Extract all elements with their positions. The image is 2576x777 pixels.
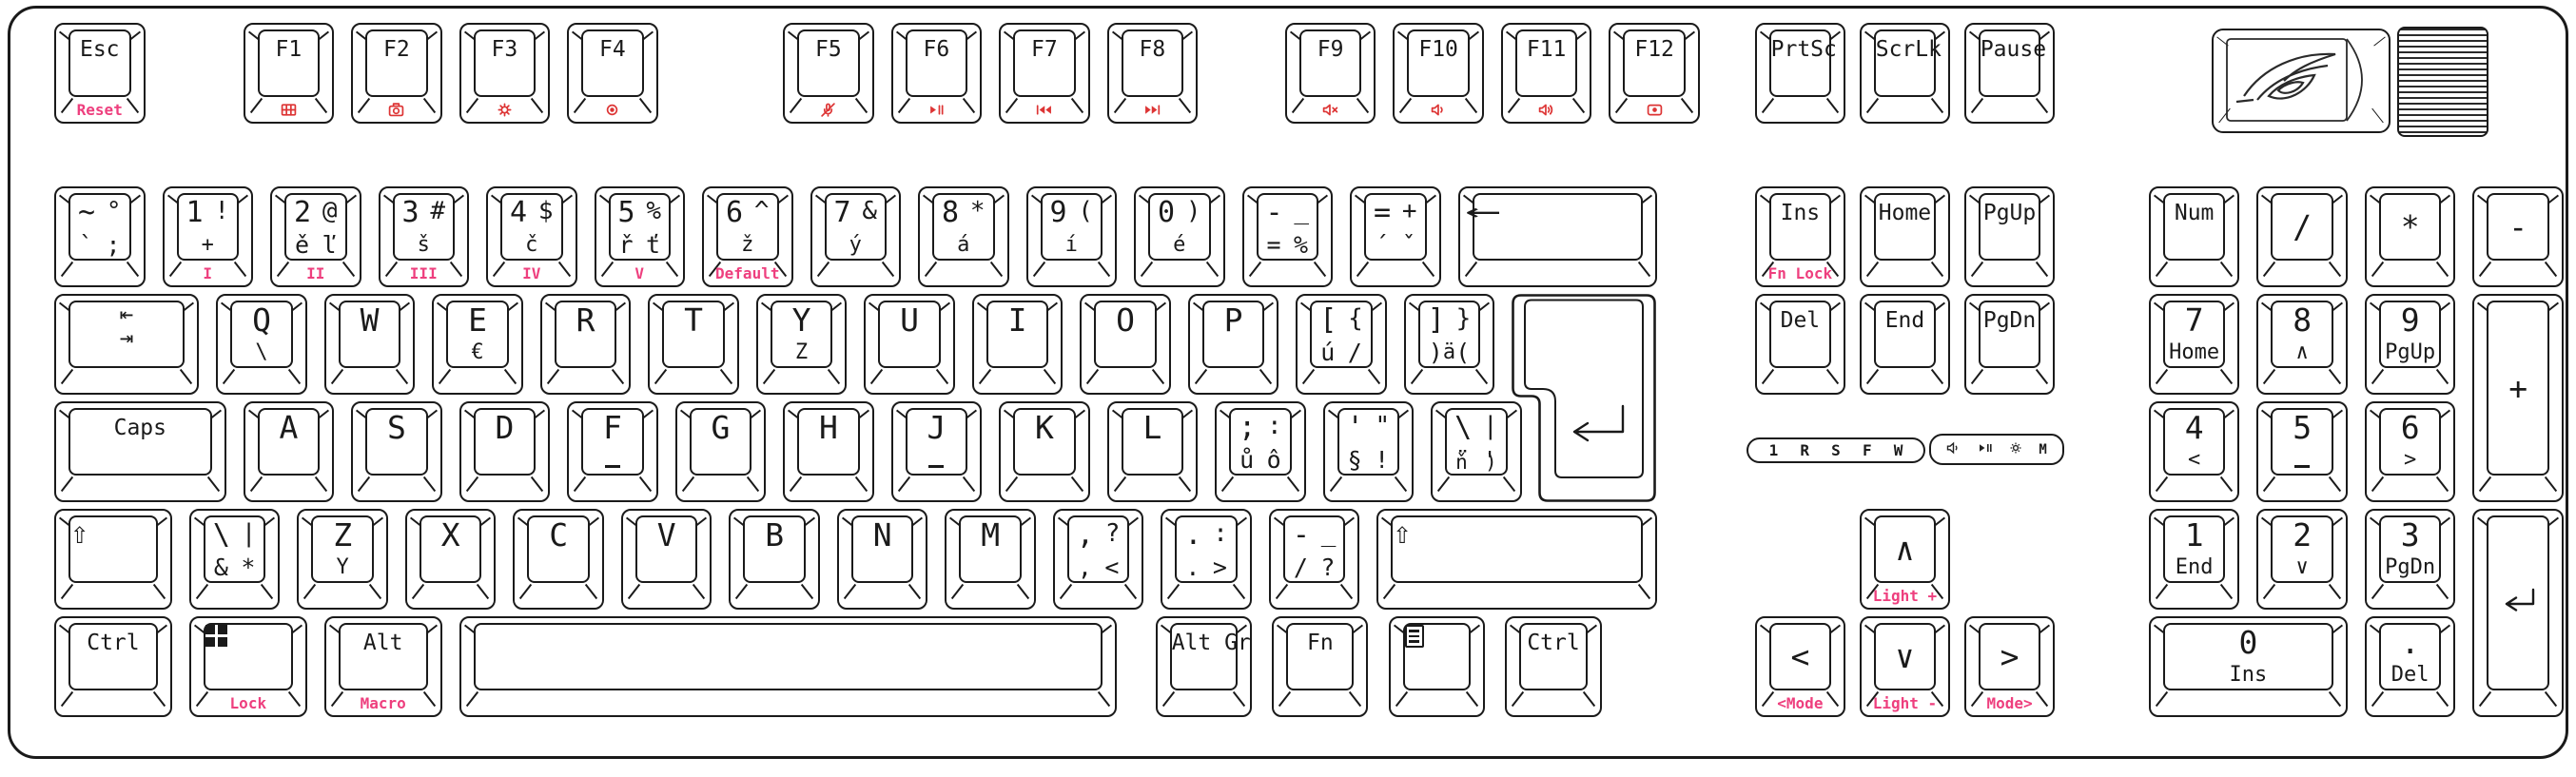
bevel (2371, 262, 2384, 277)
key-f8[interactable]: F8 (1107, 23, 1199, 124)
key-i[interactable]: I (972, 294, 1064, 395)
key-n[interactable]: N (837, 509, 928, 610)
bevel (126, 262, 138, 277)
keycap-top: ]})(ä (1418, 301, 1481, 368)
bevel (1017, 584, 1029, 599)
key-f11[interactable]: F11 (1501, 23, 1592, 124)
bevel (2545, 476, 2557, 492)
bevel (1637, 262, 1649, 277)
key-rshift[interactable]: ⇧ (1376, 509, 1656, 610)
bevel (1195, 369, 1207, 384)
key-prtsc[interactable]: PrtSc (1755, 23, 1846, 124)
bevel (816, 262, 829, 277)
indicator-letter: S (1831, 441, 1841, 459)
key-space[interactable] (459, 616, 1117, 717)
bevel (1113, 476, 1125, 492)
bevel (1286, 476, 1298, 492)
bevel (1464, 262, 1476, 277)
keycap-top: ⇤⇥ (68, 301, 185, 368)
front-legend (1287, 99, 1375, 121)
key-3[interactable]: 3#šIII (379, 186, 470, 287)
keycap-top: 1!+ (177, 193, 240, 261)
keycap-top: 4< (2163, 408, 2226, 476)
bevel (1971, 262, 1983, 277)
key-np-1[interactable]: 1End (2149, 509, 2240, 610)
bevel (585, 584, 597, 599)
bevel (1276, 584, 1288, 599)
bevel (1421, 262, 1434, 277)
key-f2[interactable]: F2 (351, 23, 442, 124)
bevel (2479, 691, 2491, 707)
key-rctrl[interactable]: Ctrl (1505, 616, 1601, 717)
key-semicolon[interactable]: ;:ůô (1215, 401, 1306, 502)
front-legend: III (381, 262, 468, 284)
bevel (1971, 369, 1983, 384)
keycap-top: Home (1874, 193, 1937, 261)
shift-icon: ⇧ (1393, 515, 1411, 551)
volume-wheel[interactable] (2397, 27, 2488, 137)
keycap-top: =+´ˇ (1364, 193, 1427, 261)
bevel (1826, 369, 1839, 384)
keycap-top: F11 (1515, 29, 1578, 97)
key-f10[interactable]: F10 (1393, 23, 1484, 124)
bevel (870, 369, 883, 384)
bevel (1248, 262, 1260, 277)
bevel (2263, 476, 2275, 492)
bevel (1368, 369, 1380, 384)
key-e[interactable]: E€ (432, 294, 523, 395)
keycap-top: D (474, 408, 537, 476)
key-f7[interactable]: F7 (999, 23, 1090, 124)
key-np-8[interactable]: 8∧ (2256, 294, 2348, 395)
keycap-top: L (1122, 408, 1184, 476)
keycap-top: -_=% (1257, 193, 1319, 261)
key-ins[interactable]: InsFn Lock (1755, 186, 1846, 287)
aura-icon (604, 103, 620, 117)
key-y[interactable]: YZ (756, 294, 848, 395)
key-np-9[interactable]: 9PgUp (2365, 294, 2456, 395)
key-k[interactable]: K (999, 401, 1090, 502)
bevel (477, 584, 489, 599)
keycap-top: ← (1473, 193, 1643, 261)
key-win[interactable]: Lock (189, 616, 307, 717)
keycap-top: Alt (339, 623, 428, 690)
key-np-3[interactable]: 3PgDn (2365, 509, 2456, 610)
key-iso-backslash[interactable]: \|&* (189, 509, 281, 610)
key-slash[interactable]: -_/? (1269, 509, 1360, 610)
key-z[interactable]: ZY (297, 509, 388, 610)
bevel (2036, 369, 2048, 384)
keycap-top: 9PgUp (2379, 301, 2442, 368)
key-lbracket[interactable]: [{ú/ (1296, 294, 1387, 395)
bevel (206, 476, 219, 492)
key-9[interactable]: 9(í (1026, 186, 1118, 287)
bevel (288, 369, 301, 384)
front-legend: I (165, 262, 252, 284)
keycap-top: T (662, 301, 725, 368)
bevel (2156, 476, 2168, 492)
bevel (369, 584, 381, 599)
indicator-letter: 1 (1769, 441, 1779, 459)
keycap-top: Del (1769, 301, 1832, 368)
bevel (315, 476, 327, 492)
rog-logo (2215, 33, 2387, 128)
gear-icon (497, 103, 513, 117)
keycap-top: 2@ěľ (284, 193, 347, 261)
key-del[interactable]: Del (1755, 294, 1846, 395)
bevel (504, 369, 517, 384)
keycap-top (474, 623, 1103, 690)
key-home[interactable]: Home (1860, 186, 1951, 287)
key-scrlk[interactable]: ScrLk (1860, 23, 1951, 124)
bevel (2479, 476, 2491, 492)
keycap-top: Ctrl (1519, 623, 1587, 690)
key-np-6[interactable]: 6> (2365, 401, 2456, 502)
keycap-top (1403, 623, 1471, 690)
front-legend (461, 99, 549, 121)
key-6[interactable]: 6^žDefault (702, 186, 793, 287)
keycap-top: Caps (68, 408, 212, 476)
bevel (1866, 369, 1879, 384)
key-x[interactable]: X (405, 509, 497, 610)
bevel (1349, 691, 1361, 707)
speaker-icon (1946, 440, 1961, 458)
key-f6[interactable]: F6 (891, 23, 983, 124)
key-f9[interactable]: F9 (1285, 23, 1376, 124)
keycap-top: U (878, 301, 941, 368)
keycap-top: PgUp (1979, 193, 2041, 261)
key-c[interactable]: C (513, 509, 604, 610)
keycap-top: F8 (1122, 29, 1184, 97)
keycap-top: N (851, 515, 914, 583)
bevel (720, 369, 732, 384)
key-lctrl[interactable]: Ctrl (54, 616, 172, 717)
bevel (1340, 584, 1353, 599)
keycap-top: 9(í (1041, 193, 1103, 261)
bevel (1124, 584, 1137, 599)
indicator-letter: W (1894, 441, 1903, 459)
key-rbracket[interactable]: ]})(ä (1404, 294, 1495, 395)
keycap-top: 1End (2163, 515, 2226, 583)
key-l[interactable]: L (1107, 401, 1199, 502)
bevel (303, 584, 316, 599)
key-hash[interactable]: \|¨'ň) (1431, 401, 1522, 502)
keycap-top: .Del (2379, 623, 2442, 690)
keycap-top: F6 (906, 29, 968, 97)
keycap-top: A (258, 408, 321, 476)
keycap-top: '"§! (1337, 408, 1400, 476)
bevel (2436, 476, 2449, 492)
bevel (1221, 476, 1234, 492)
bevel (908, 584, 921, 599)
key-m[interactable]: M (945, 509, 1036, 610)
keycap-top: 7Home (2163, 301, 2226, 368)
key-4[interactable]: 4$čIV (486, 186, 577, 287)
front-legend: Light - (1862, 692, 1949, 714)
keycap-top: O (1094, 301, 1157, 368)
bevel (2156, 584, 2168, 599)
key-o[interactable]: O (1080, 294, 1171, 395)
key-np-multiply[interactable]: * (2365, 186, 2456, 287)
bevel (547, 369, 559, 384)
key-end[interactable]: End (1860, 294, 1951, 395)
front-legend: Light + (1862, 585, 1949, 607)
keycap-top: ~°`; (68, 193, 131, 261)
win-logo-icon (205, 625, 291, 647)
key-arrow-down[interactable]: ∨Light - (1860, 616, 1951, 717)
bevel (2036, 98, 2048, 113)
mic-mute-icon (820, 103, 836, 117)
bevel (747, 476, 759, 492)
keycap-top: / (2271, 193, 2333, 261)
keycap-top: YZ (771, 301, 833, 368)
key-f1[interactable]: F1 (244, 23, 335, 124)
key-q[interactable]: Q\ (216, 294, 307, 395)
bevel (2329, 691, 2341, 707)
key-np-5[interactable]: 5 (2256, 401, 2348, 502)
key-g[interactable]: G (675, 401, 767, 502)
key-np-enter[interactable] (2472, 509, 2564, 717)
key-minus[interactable]: -_=% (1242, 186, 1334, 287)
key-a[interactable]: A (244, 401, 335, 502)
keycap-top: Pause (1979, 29, 2041, 97)
keycap-top: 4$č (500, 193, 563, 261)
keycap-top: - (2487, 193, 2549, 261)
front-legend (569, 99, 656, 121)
bevel (1466, 691, 1478, 707)
key-arrow-left[interactable]: <<Mode (1755, 616, 1846, 717)
bevel (331, 369, 343, 384)
key-f3[interactable]: F3 (459, 23, 551, 124)
bevel (790, 476, 802, 492)
bevel (979, 369, 991, 384)
key-u[interactable]: U (864, 294, 955, 395)
bevel (1179, 476, 1191, 492)
bevel (396, 369, 408, 384)
key-esc[interactable]: EscReset (54, 23, 146, 124)
keycap-top: F12 (1623, 29, 1686, 97)
keycap-top: ∨ (1874, 623, 1937, 690)
key-0[interactable]: 0)é (1134, 186, 1225, 287)
bevel (735, 584, 748, 599)
keycap-top: K (1013, 408, 1076, 476)
bevel (2156, 262, 2168, 277)
key-numlock[interactable]: Num (2149, 186, 2240, 287)
bevel (1826, 98, 1839, 113)
keycap-top: V (635, 515, 698, 583)
indicator-letter: F (1863, 441, 1872, 459)
front-legend: IV (488, 262, 576, 284)
bevel (1233, 691, 1245, 707)
front-legend: II (272, 262, 360, 284)
key-w[interactable]: W (324, 294, 416, 395)
key-np-4[interactable]: 4< (2149, 401, 2240, 502)
bevel (1167, 584, 1180, 599)
keycap-top: Esc (68, 29, 131, 97)
key-arrow-right[interactable]: >Mode> (1964, 616, 2056, 717)
key-tab[interactable]: ⇤⇥ (54, 294, 199, 395)
front-legend: V (596, 262, 684, 284)
key-d[interactable]: D (459, 401, 551, 502)
key-altgr[interactable]: Alt Gr (1156, 616, 1252, 717)
bevel (1931, 98, 1943, 113)
key-grave[interactable]: ~°`; (54, 186, 146, 287)
key-pause[interactable]: Pause (1964, 23, 2056, 124)
key-np-plus[interactable]: + (2472, 294, 2564, 502)
bevel (2436, 369, 2449, 384)
keycap-top: C (527, 515, 590, 583)
key-b[interactable]: B (729, 509, 820, 610)
key-backspace[interactable]: ← (1458, 186, 1657, 287)
keycap-top: ⇧ (1391, 515, 1642, 583)
prev-track-icon (1036, 103, 1052, 117)
next-track-icon (1144, 103, 1161, 117)
bevel (2220, 262, 2233, 277)
bevel (2156, 369, 2168, 384)
bevel (693, 584, 705, 599)
keycap-top: I (986, 301, 1049, 368)
key-np-0[interactable]: 0Ins (2149, 616, 2348, 717)
keycap-top: R (555, 301, 617, 368)
bevel (412, 584, 424, 599)
bevel (61, 584, 73, 599)
bevel (1356, 262, 1369, 277)
key-np-7[interactable]: 7Home (2149, 294, 2240, 395)
keycap-top: F9 (1299, 29, 1362, 97)
enter-icon (2496, 586, 2540, 620)
bevel (1162, 691, 1175, 707)
key-np-minus[interactable]: - (2472, 186, 2564, 287)
bevel (897, 476, 909, 492)
bevel (1141, 262, 1153, 277)
bevel (61, 262, 73, 277)
key-fn[interactable]: Fn (1272, 616, 1368, 717)
key-lalt[interactable]: AltMacro (324, 616, 442, 717)
bevel (854, 476, 867, 492)
bevel (61, 691, 73, 707)
bevel (1637, 584, 1649, 599)
key-f12[interactable]: F12 (1609, 23, 1700, 124)
key-np-divide[interactable]: / (2256, 186, 2348, 287)
key-5[interactable]: 5%řťV (595, 186, 686, 287)
key-2[interactable]: 2@ěľII (270, 186, 361, 287)
keycap-top (2487, 515, 2549, 690)
key-7[interactable]: 7&ý (810, 186, 902, 287)
bevel (153, 691, 166, 707)
keycap-top: F4 (581, 29, 644, 97)
key-period[interactable]: .:.> (1161, 509, 1252, 610)
key-np-2[interactable]: 2∨ (2256, 509, 2348, 610)
key-r[interactable]: R (540, 294, 632, 395)
keycap-top: F7 (1013, 29, 1076, 97)
key-f4[interactable]: F4 (567, 23, 658, 124)
bevel (1205, 262, 1218, 277)
bevel (1070, 476, 1083, 492)
keycap-top: P (1202, 301, 1265, 368)
indicator-icon-labels: M (1929, 434, 2064, 465)
bevel (2263, 262, 2275, 277)
key-1[interactable]: 1!+I (163, 186, 254, 287)
bevel (989, 262, 1002, 277)
bevel (1512, 691, 1524, 707)
key-8[interactable]: 8*á (918, 186, 1009, 287)
record-icon (1647, 103, 1663, 117)
bevel (1931, 262, 1943, 277)
key-s[interactable]: S (351, 401, 442, 502)
key-equal[interactable]: =+´ˇ (1350, 186, 1441, 287)
key-arrow-up[interactable]: ∧Light + (1860, 509, 1951, 610)
key-enter[interactable] (1512, 294, 1656, 502)
key-caps[interactable]: Caps (54, 401, 226, 502)
bevel (1582, 691, 1594, 707)
key-f[interactable]: F (567, 401, 658, 502)
bevel (1060, 584, 1072, 599)
keycap-top: 8∧ (2271, 301, 2333, 368)
bevel (1866, 262, 1879, 277)
key-pgup[interactable]: PgUp (1964, 186, 2056, 287)
key-f5[interactable]: F5 (783, 23, 874, 124)
front-legend: Macro (326, 692, 440, 714)
rog-logo-key[interactable] (2212, 29, 2391, 133)
key-p[interactable]: P (1188, 294, 1279, 395)
key-comma[interactable]: ,?,< (1053, 509, 1144, 610)
keycap-top (204, 623, 293, 690)
key-lshift[interactable]: ⇧ (54, 509, 172, 610)
bevel (2545, 262, 2557, 277)
indicator-letter: R (1800, 441, 1809, 459)
keycap-top: F1 (258, 29, 321, 97)
bevel (2371, 369, 2384, 384)
bevel (2156, 691, 2168, 707)
keycap-top: + (2487, 301, 2549, 476)
key-h[interactable]: H (783, 401, 874, 502)
bevel (1761, 98, 1773, 113)
front-legend (1610, 99, 1698, 121)
keycap-top: J (906, 408, 968, 476)
indicator-led-labels: 1RSFW (1747, 437, 1925, 463)
key-pgdn[interactable]: PgDn (1964, 294, 2056, 395)
bevel (61, 476, 73, 492)
keycap-top: S (365, 408, 428, 476)
bevel (1329, 476, 1341, 492)
bevel (925, 262, 937, 277)
bevel (2436, 584, 2449, 599)
backspace-icon: ← (1465, 195, 1501, 228)
keycap-top: [{ú/ (1310, 301, 1373, 368)
key-menu[interactable] (1389, 616, 1485, 717)
keycap-top: ZY (311, 515, 374, 583)
key-np-dot[interactable]: .Del (2365, 616, 2456, 717)
front-legend (1395, 99, 1482, 121)
bevel (196, 584, 208, 599)
bevel (519, 584, 532, 599)
key-t[interactable]: T (648, 294, 739, 395)
bevel (1761, 369, 1773, 384)
key-quote[interactable]: '"§! (1323, 401, 1415, 502)
front-legend: <Mode (1757, 692, 1844, 714)
bevel (153, 584, 166, 599)
key-v[interactable]: V (621, 509, 712, 610)
bevel (2329, 476, 2341, 492)
camera-icon (388, 103, 404, 117)
sun-icon (2008, 440, 2023, 458)
key-j[interactable]: J (891, 401, 983, 502)
shift-icon: ⇧ (70, 515, 88, 551)
keycap-top: Num (2163, 193, 2226, 261)
keycap-top: F5 (797, 29, 860, 97)
bevel (1086, 369, 1099, 384)
bevel (1411, 369, 1423, 384)
